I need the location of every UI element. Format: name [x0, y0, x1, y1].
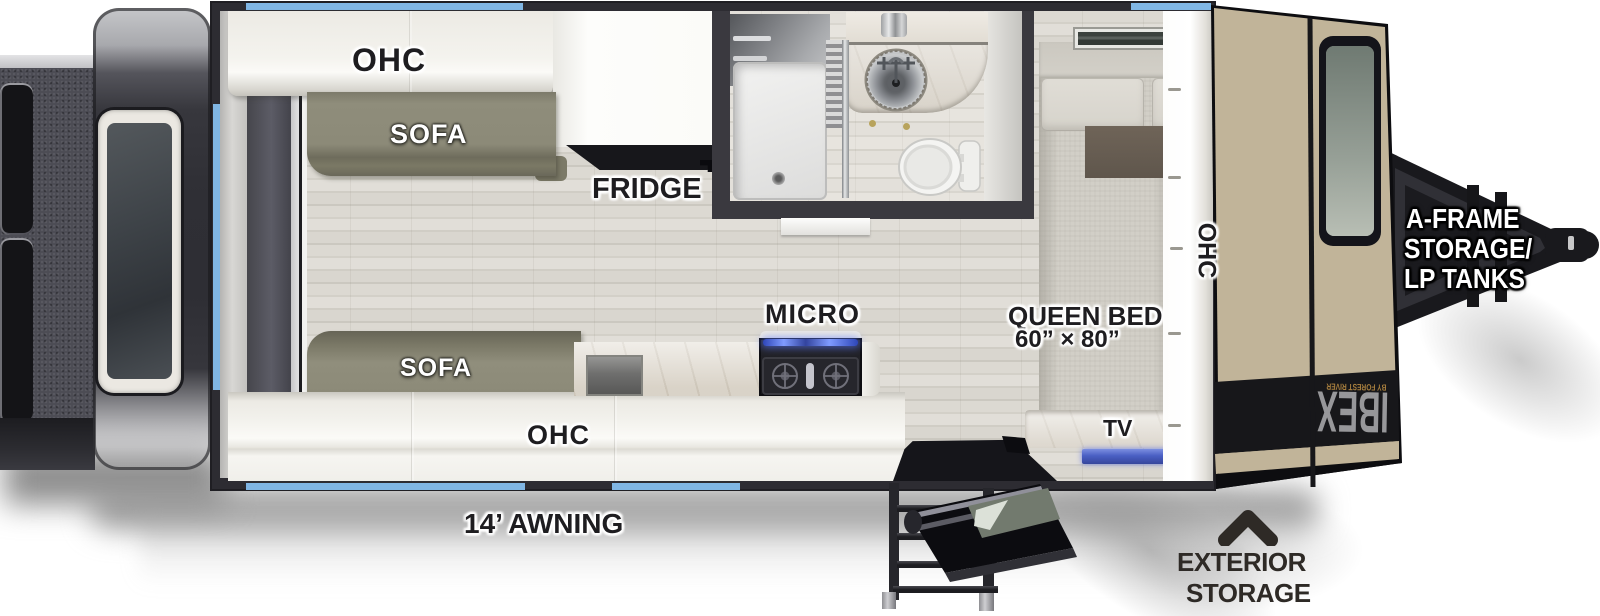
svg-text:BY FOREST RIVER: BY FOREST RIVER [1326, 381, 1387, 392]
